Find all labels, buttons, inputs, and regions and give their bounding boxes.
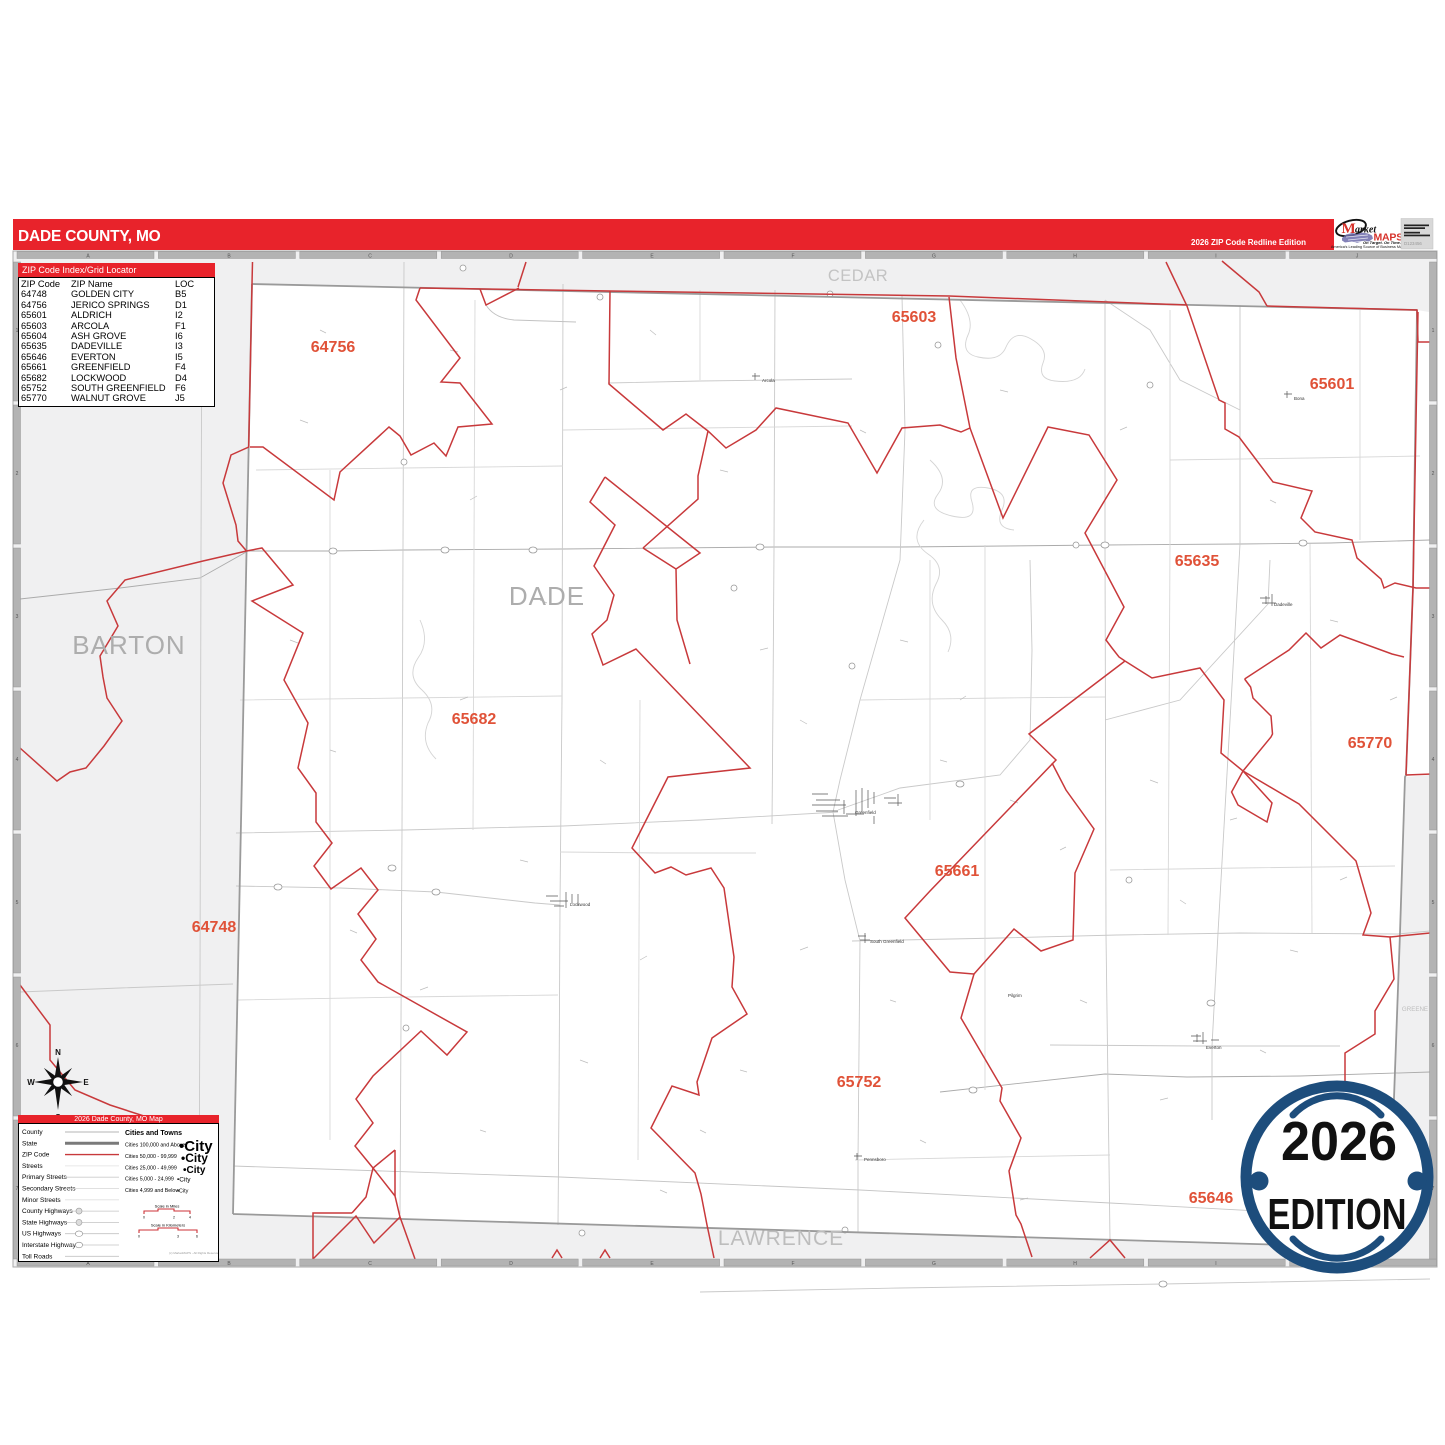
svg-text:CEDAR: CEDAR	[828, 267, 888, 285]
svg-text:64756: 64756	[311, 339, 356, 356]
svg-text:Toll Roads: Toll Roads	[22, 1253, 53, 1260]
svg-text:I: I	[1215, 1261, 1216, 1267]
svg-text:65603: 65603	[892, 309, 937, 326]
svg-text:W: W	[27, 1078, 35, 1087]
svg-text:GREENE: GREENE	[1402, 1006, 1428, 1013]
svg-text:•City: •City	[181, 1151, 208, 1165]
svg-text:•City: •City	[177, 1189, 189, 1195]
svg-text:6: 6	[196, 1235, 198, 1239]
svg-text:G: G	[932, 1261, 936, 1267]
svg-text:State Highways: State Highways	[22, 1219, 68, 1226]
svg-text:0: 0	[138, 1235, 140, 1239]
svg-text:DADE COUNTY, MO: DADE COUNTY, MO	[18, 228, 161, 245]
svg-text:(c) MarketMAPS - All Rights Re: (c) MarketMAPS - All Rights Reserved	[169, 1251, 218, 1255]
svg-text:South Greenfield: South Greenfield	[870, 939, 904, 944]
svg-text:Minor Streets: Minor Streets	[22, 1197, 61, 1204]
svg-text:D: D	[509, 1261, 513, 1267]
svg-text:County: County	[22, 1129, 43, 1136]
svg-text:4: 4	[16, 757, 19, 763]
svg-text:America's Leading Source of Bu: America's Leading Source of Business Map…	[1331, 245, 1406, 249]
svg-text:Greenfield: Greenfield	[855, 810, 876, 815]
svg-text:2: 2	[1432, 471, 1435, 477]
svg-text:Lockwood: Lockwood	[570, 902, 591, 907]
svg-text:Secondary Streets: Secondary Streets	[22, 1186, 76, 1193]
svg-text:H: H	[1073, 1261, 1077, 1267]
svg-text:Cities 25,000 - 49,999: Cities 25,000 - 49,999	[125, 1166, 177, 1172]
svg-text:Interstate Highways: Interstate Highways	[22, 1242, 80, 1249]
svg-text:H: H	[1073, 254, 1077, 260]
svg-text:6: 6	[16, 1043, 19, 1049]
svg-text:Pennsboro: Pennsboro	[864, 1157, 886, 1162]
svg-text:65661: 65661	[935, 863, 980, 880]
svg-text:Cities 100,000 and Above: Cities 100,000 and Above	[125, 1143, 185, 1149]
svg-text:F: F	[791, 1261, 794, 1267]
svg-text:2: 2	[173, 1216, 175, 1220]
svg-text:LAWRENCE: LAWRENCE	[718, 1227, 844, 1250]
svg-text:Cities 5,000 - 24,999: Cities 5,000 - 24,999	[125, 1177, 174, 1183]
svg-text:Pilgrim: Pilgrim	[1008, 993, 1022, 998]
svg-text:4: 4	[1432, 757, 1435, 763]
svg-text:0: 0	[143, 1216, 145, 1220]
svg-text:C: C	[368, 254, 372, 260]
svg-text:3: 3	[177, 1235, 179, 1239]
svg-text:65752: 65752	[837, 1074, 882, 1091]
svg-text:Streets: Streets	[22, 1163, 43, 1170]
svg-text:D: D	[509, 254, 513, 260]
svg-text:3: 3	[16, 614, 19, 620]
svg-text:65635: 65635	[1175, 553, 1220, 570]
svg-text:Cities 4,999 and Below: Cities 4,999 and Below	[125, 1188, 179, 1194]
svg-text:2026: 2026	[1281, 1110, 1397, 1172]
svg-text:Everton: Everton	[1206, 1045, 1222, 1050]
svg-text:•City: •City	[183, 1165, 206, 1176]
svg-text:DADE: DADE	[509, 581, 585, 611]
svg-text:Scale in Kilometers: Scale in Kilometers	[151, 1223, 185, 1228]
svg-text:5: 5	[1432, 900, 1435, 906]
svg-text:5: 5	[16, 900, 19, 906]
svg-text:County Highways: County Highways	[22, 1208, 73, 1215]
svg-text:64748: 64748	[192, 919, 237, 936]
svg-text:6: 6	[1432, 1043, 1435, 1049]
svg-text:State: State	[22, 1140, 38, 1147]
svg-text:BARTON: BARTON	[72, 630, 185, 660]
svg-text:Scale in Miles: Scale in Miles	[155, 1204, 180, 1209]
svg-text:4: 4	[189, 1216, 191, 1220]
svg-text:G: G	[932, 254, 936, 260]
svg-text:•City: •City	[177, 1177, 191, 1184]
svg-text:Dadeville: Dadeville	[1274, 602, 1293, 607]
svg-text:I: I	[1215, 254, 1216, 260]
svg-text:Cities 50,000 - 99,999: Cities 50,000 - 99,999	[125, 1154, 177, 1160]
svg-text:Bona: Bona	[1294, 396, 1305, 401]
svg-text:2026 ZIP Code Redline Edition: 2026 ZIP Code Redline Edition	[1191, 238, 1306, 247]
svg-text:65646: 65646	[1189, 1190, 1234, 1207]
svg-text:F: F	[791, 254, 794, 260]
svg-text:US Highways: US Highways	[22, 1231, 62, 1238]
svg-text:1: 1	[1432, 328, 1435, 334]
svg-text:E: E	[83, 1078, 89, 1087]
svg-text:EDITION: EDITION	[1268, 1190, 1407, 1239]
svg-text:D123456: D123456	[1404, 241, 1422, 246]
svg-text:ZIP Code: ZIP Code	[22, 1152, 50, 1159]
svg-text:C: C	[368, 1261, 372, 1267]
svg-text:3: 3	[1432, 614, 1435, 620]
svg-text:65682: 65682	[452, 711, 497, 728]
svg-text:65601: 65601	[1310, 376, 1355, 393]
svg-text:65770: 65770	[1348, 735, 1393, 752]
svg-text:Primary Streets: Primary Streets	[22, 1174, 68, 1181]
svg-text:Cities and Towns: Cities and Towns	[125, 1130, 182, 1137]
svg-text:Arcola: Arcola	[762, 378, 775, 383]
svg-text:2: 2	[16, 471, 19, 477]
svg-text:N: N	[55, 1048, 61, 1057]
